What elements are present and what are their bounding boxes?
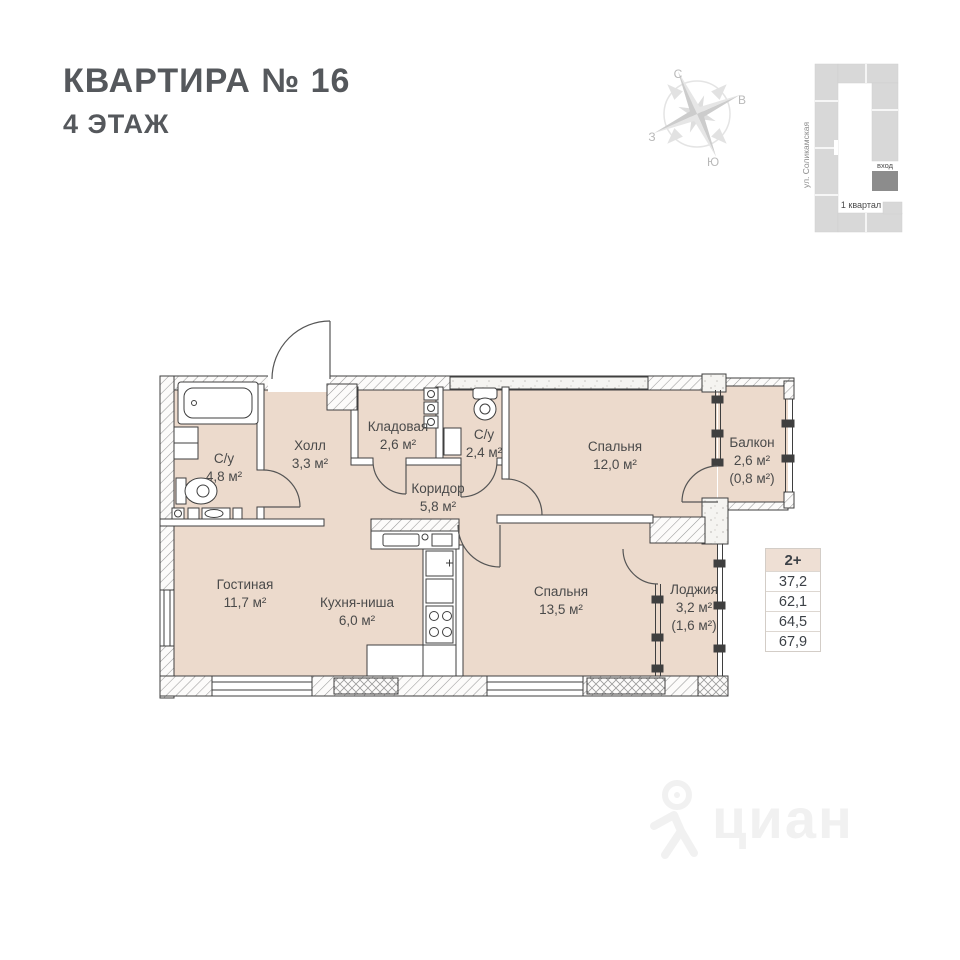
svg-text:Коридор: Коридор [411, 481, 464, 496]
area-summary-table: 2+ 37,2 62,1 64,5 67,9 [765, 548, 821, 652]
area-value-row: 62,1 [766, 591, 820, 611]
compass-west-label: З [648, 130, 655, 144]
area-value-row: 64,5 [766, 611, 820, 631]
cian-logo-icon [644, 778, 706, 860]
plan-type-badge: 2+ [766, 549, 820, 571]
page: КВАРТИРА № 16 4 ЭТАЖ [0, 0, 960, 960]
svg-text:11,7 м²: 11,7 м² [224, 595, 267, 610]
svg-text:6,0 м²: 6,0 м² [339, 613, 376, 628]
compass-east-label: В [738, 93, 746, 107]
window [160, 590, 174, 646]
svg-text:Холл: Холл [294, 438, 326, 453]
svg-text:Лоджия: Лоджия [670, 582, 718, 597]
compass-south-label: Ю [707, 155, 719, 169]
room-label-loggia: Лоджия 3,2 м² (1,6 м²) [670, 582, 718, 633]
compass-rose: С В З Ю [635, 52, 759, 176]
svg-text:13,5 м²: 13,5 м² [539, 602, 583, 617]
entrance-door-arc [272, 321, 330, 379]
svg-text:(1,6 м²): (1,6 м²) [671, 618, 716, 633]
area-value-row: 37,2 [766, 571, 820, 591]
shower-cabinet-icon [444, 428, 461, 455]
svg-text:12,0 м²: 12,0 м² [593, 457, 637, 472]
watermark-text: циан [712, 791, 854, 847]
svg-text:Спальня: Спальня [534, 584, 588, 599]
svg-text:2,6 м²: 2,6 м² [734, 453, 771, 468]
window [212, 676, 312, 696]
toilet-icon [473, 388, 497, 420]
kitchen-counter-icon [371, 519, 459, 549]
compass-north-label: С [674, 67, 683, 81]
svg-text:Кухня-ниша: Кухня-ниша [320, 595, 394, 610]
entrance-marker [872, 171, 898, 191]
svg-text:Кладовая: Кладовая [368, 419, 428, 434]
svg-text:С/у: С/у [474, 427, 495, 442]
svg-text:3,3 м²: 3,3 м² [292, 456, 329, 471]
district-label: 1 квартал [841, 200, 881, 210]
building-notch [834, 140, 838, 155]
street-label: ул. Соликамская [801, 122, 811, 188]
svg-text:Балкон: Балкон [729, 435, 774, 450]
svg-text:С/у: С/у [214, 451, 235, 466]
room-label-balcony: Балкон 2,6 м² (0,8 м²) [729, 435, 774, 486]
svg-text:Спальня: Спальня [588, 439, 642, 454]
svg-text:4,8 м²: 4,8 м² [206, 469, 243, 484]
window [487, 676, 583, 696]
area-value-row: 67,9 [766, 631, 820, 651]
bathtub-icon [178, 382, 258, 424]
svg-text:2,6 м²: 2,6 м² [380, 437, 417, 452]
entrance-label: вход [877, 161, 894, 170]
washbasin-cabinet-icon [174, 427, 198, 459]
svg-text:Гостиная: Гостиная [217, 577, 274, 592]
svg-text:3,2 м²: 3,2 м² [676, 600, 713, 615]
watermark: циан [644, 778, 854, 860]
svg-text:(0,8 м²): (0,8 м²) [729, 471, 774, 486]
site-plan: вход 1 квартал ул. Соликамская [801, 64, 902, 232]
svg-text:5,8 м²: 5,8 м² [420, 499, 457, 514]
svg-text:2,4 м²: 2,4 м² [466, 445, 503, 460]
